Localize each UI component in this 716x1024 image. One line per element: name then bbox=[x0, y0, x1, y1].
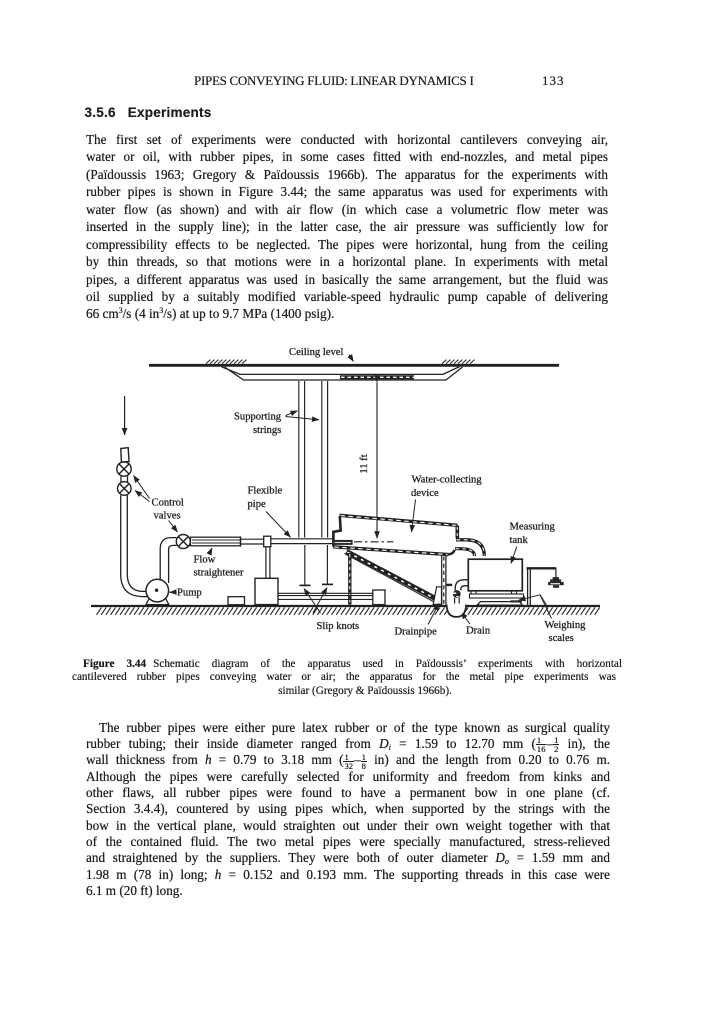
svg-text:Water-collecting: Water-collecting bbox=[412, 475, 483, 486]
svg-text:Drainpipe: Drainpipe bbox=[395, 627, 438, 638]
svg-text:tank: tank bbox=[510, 535, 529, 546]
svg-text:Flexible: Flexible bbox=[248, 486, 283, 497]
svg-text:strings: strings bbox=[253, 425, 281, 436]
svg-text:scales: scales bbox=[549, 633, 574, 644]
svg-text:Flow: Flow bbox=[194, 555, 216, 566]
svg-text:Weighing: Weighing bbox=[545, 620, 587, 631]
svg-text:Measuring: Measuring bbox=[510, 522, 556, 533]
svg-text:11 ft: 11 ft bbox=[359, 454, 370, 473]
svg-text:pipe: pipe bbox=[248, 499, 267, 510]
svg-text:Drain: Drain bbox=[466, 626, 491, 637]
svg-text:valves: valves bbox=[154, 511, 181, 522]
svg-text:device: device bbox=[411, 488, 439, 499]
svg-text:Control: Control bbox=[152, 498, 184, 509]
svg-text:Ceiling level: Ceiling level bbox=[289, 347, 343, 358]
svg-text:straightener: straightener bbox=[194, 568, 244, 579]
svg-text:Supporting: Supporting bbox=[234, 412, 282, 423]
svg-text:Pump: Pump bbox=[177, 588, 202, 599]
svg-text:Slip knots: Slip knots bbox=[317, 621, 360, 632]
